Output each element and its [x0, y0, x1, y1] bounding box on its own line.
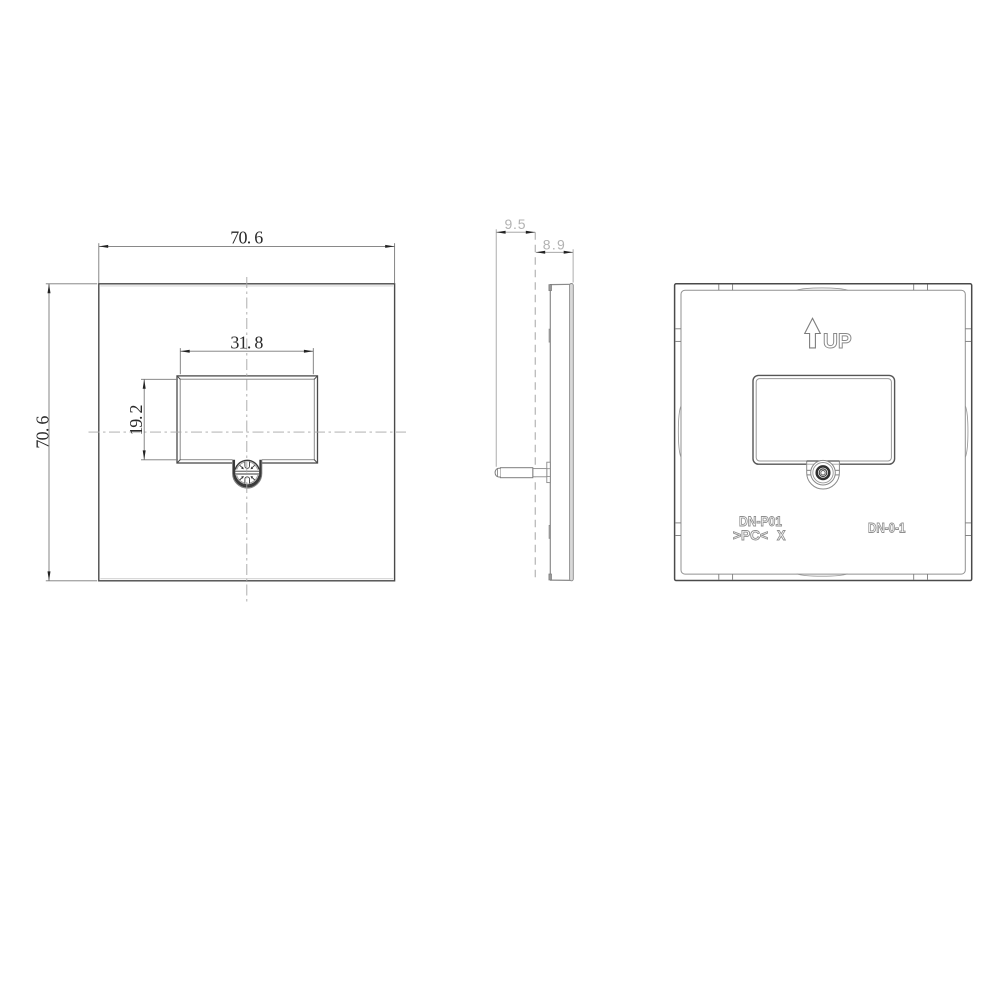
svg-text:DN-0-1: DN-0-1 [868, 520, 906, 536]
svg-text:19. 2: 19. 2 [126, 405, 146, 436]
svg-text:>PC<: >PC< [733, 527, 768, 543]
svg-text:8.9: 8.9 [543, 236, 565, 252]
svg-text:70. 6: 70. 6 [230, 228, 263, 248]
svg-text:9.5: 9.5 [505, 216, 526, 232]
svg-text:31. 8: 31. 8 [230, 333, 263, 353]
svg-text:X: X [777, 527, 786, 543]
svg-text:UP: UP [823, 330, 852, 353]
svg-text:70. 6: 70. 6 [33, 416, 53, 449]
